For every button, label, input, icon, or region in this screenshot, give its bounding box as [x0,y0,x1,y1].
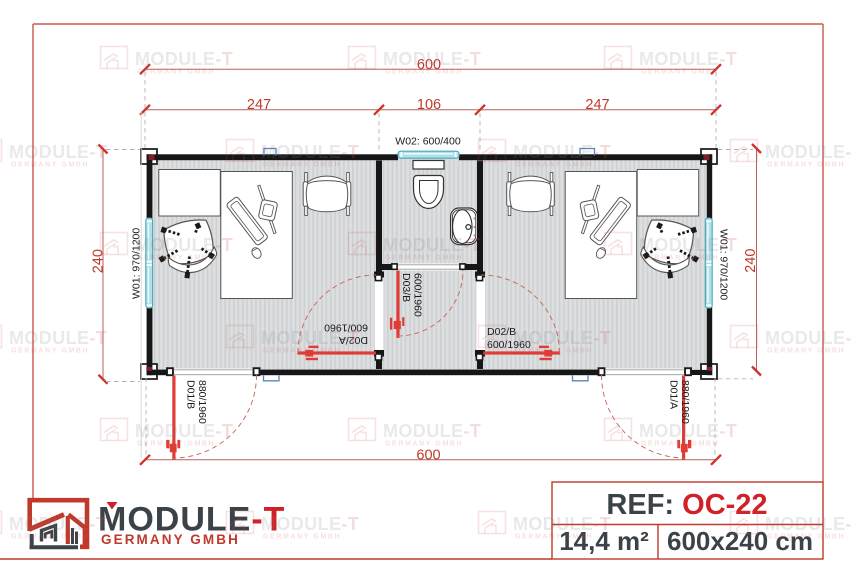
svg-text:D02/B: D02/B [487,326,516,338]
svg-text:247: 247 [247,97,271,113]
svg-text:D03/B: D03/B [400,273,412,302]
svg-text:600: 600 [416,447,440,463]
svg-text:247: 247 [585,97,609,113]
svg-text:880/1960: 880/1960 [679,380,691,424]
svg-text:240: 240 [90,249,106,273]
svg-text:W02: 600/400: W02: 600/400 [395,136,461,148]
svg-text:106: 106 [417,97,441,113]
svg-text:REF: OC-22: REF: OC-22 [606,489,767,521]
svg-text:880/1960: 880/1960 [196,380,208,424]
svg-text:D01/A: D01/A [668,380,680,409]
svg-text:D01/B: D01/B [185,380,197,409]
svg-text:GERMANY GMBH: GERMANY GMBH [101,532,240,547]
svg-text:600/1960: 600/1960 [412,273,424,317]
svg-text:240: 240 [743,249,759,273]
